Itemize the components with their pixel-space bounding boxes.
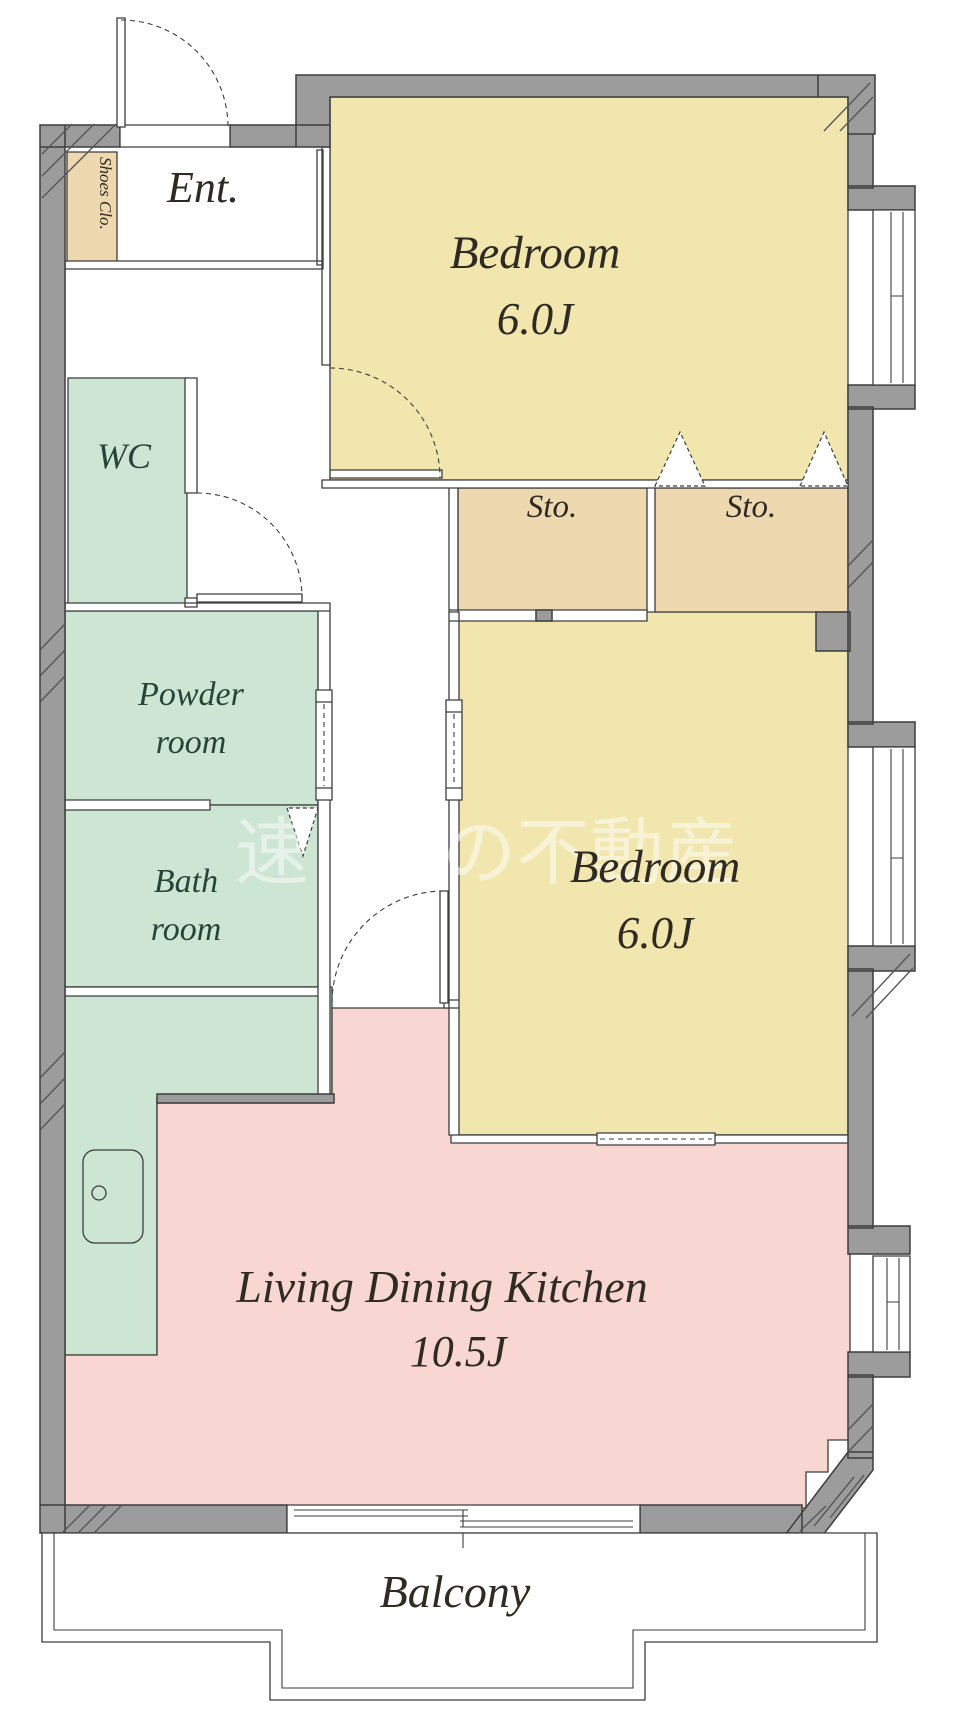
label-bedroom-top-area: 6.0J (497, 294, 575, 344)
label-storage-left: Sto. (527, 489, 577, 525)
label-bath-line1: Bath (154, 863, 218, 900)
label-ldk-area: 10.5J (410, 1327, 509, 1376)
label-powder-line1: Powder (137, 676, 245, 713)
room-wc (68, 378, 187, 607)
label-bath-line2: room (151, 911, 222, 948)
floor-plan-drawing: 速 の不動産 Ent. Shoes Clo. Bedroom 6.0J Sto.… (0, 0, 960, 1719)
floor-plan: 速 の不動産 Ent. Shoes Clo. Bedroom 6.0J Sto.… (0, 0, 960, 1719)
room-bedroom-top (330, 97, 848, 480)
label-ldk: Living Dining Kitchen (235, 1261, 647, 1312)
label-wc: WC (97, 436, 152, 476)
label-powder-line2: room (156, 724, 227, 761)
label-storage-right: Sto. (726, 489, 776, 525)
label-shoes-closet: Shoes Clo. (96, 157, 115, 230)
label-bedroom-bottom: Bedroom (570, 841, 741, 893)
label-entrance: Ent. (166, 163, 239, 212)
label-bedroom-bottom-area: 6.0J (617, 908, 695, 958)
label-bedroom-top: Bedroom (450, 227, 621, 279)
label-balcony: Balcony (380, 1566, 531, 1617)
watermark-left: 速 (235, 813, 309, 895)
